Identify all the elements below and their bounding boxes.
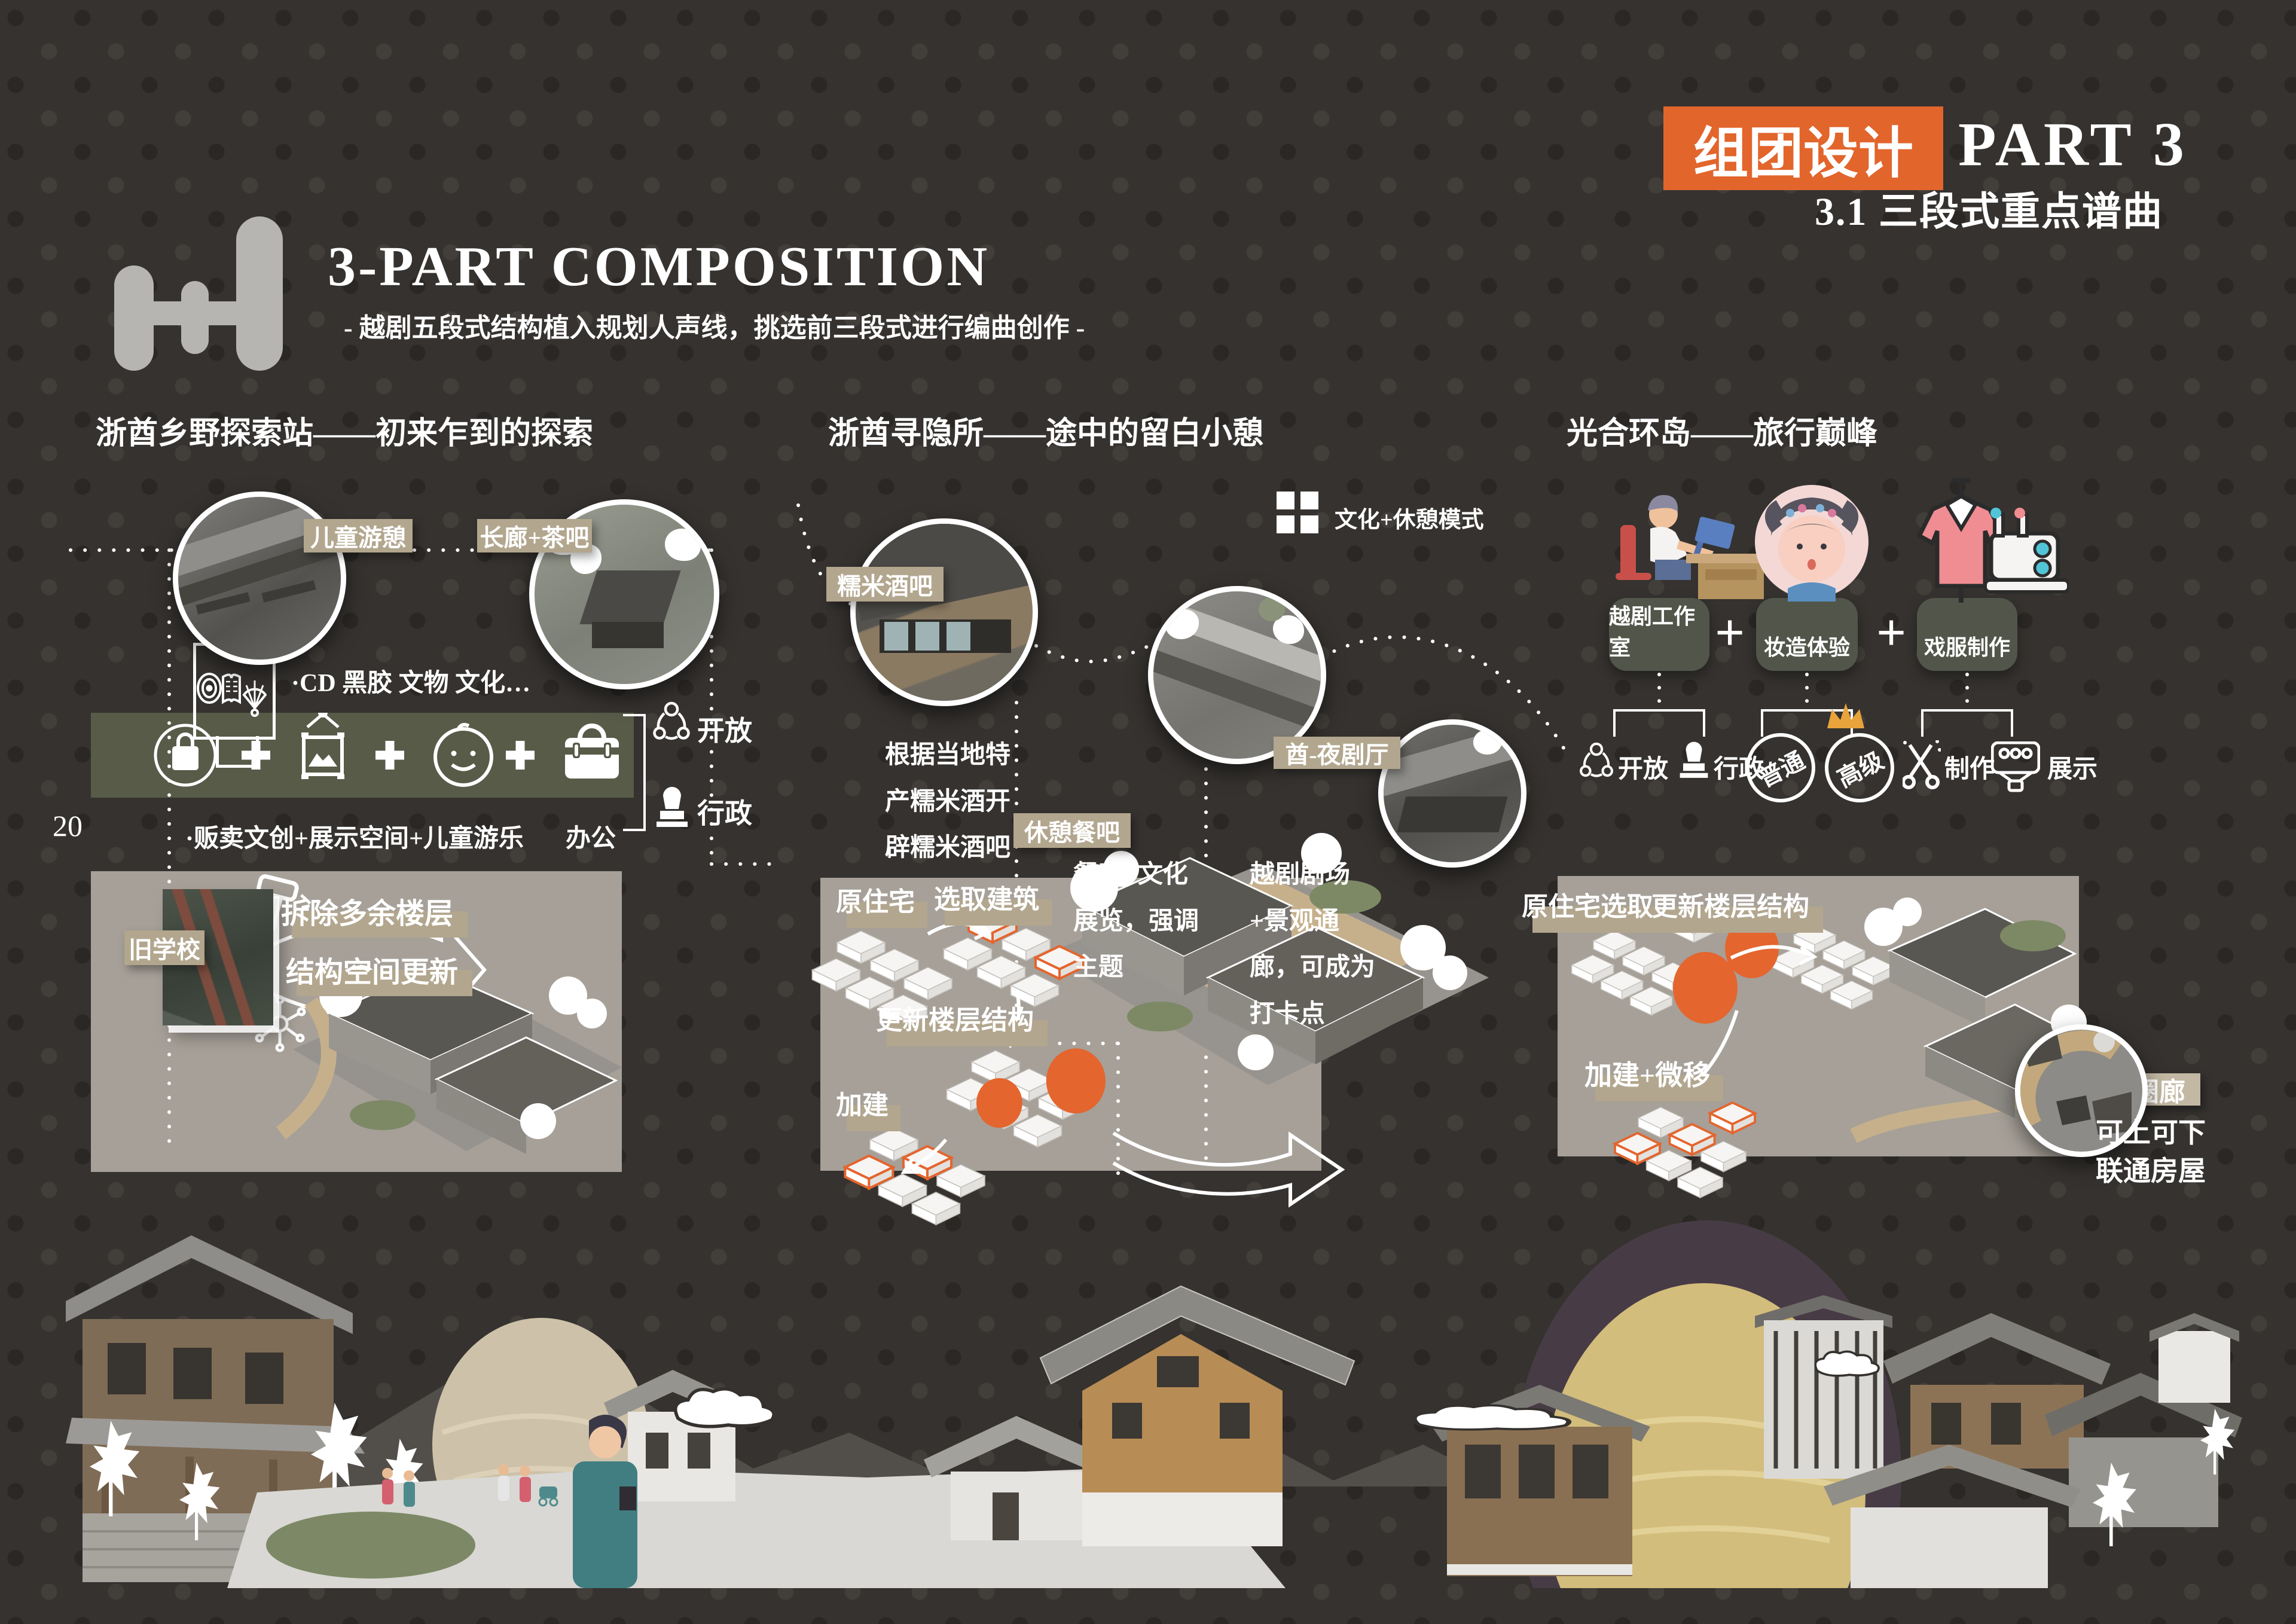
dlabel-origin: 原住宅	[836, 884, 915, 918]
label-rice-wine-bar: 糯米酒吧	[826, 567, 944, 602]
dlabel-demolish: 拆除多余楼层	[281, 893, 453, 932]
costume-sewing-illustration	[1901, 478, 2069, 607]
cluster-right-add	[1615, 1103, 1755, 1198]
crown-icon	[1826, 701, 1865, 731]
note-rest: 餐吧+文化展览，强调主题	[1073, 852, 1204, 991]
inset-rice-wine-bar	[850, 518, 1038, 706]
ring-note-1: 可上可下	[2096, 1111, 2206, 1150]
makeup-face-illustration	[1753, 482, 1870, 602]
panorama	[0, 1205, 2296, 1588]
tag-make: 制作	[1944, 749, 1995, 785]
ring-note-2: 联通房屋	[2096, 1149, 2206, 1189]
dlabel-select: 选取建筑	[934, 881, 1039, 916]
tag-brackets	[1614, 710, 2012, 737]
note-wine: 根据当地特产糯米酒开辟糯米酒吧	[885, 732, 1012, 872]
dlabel-right-select: 原住宅选取	[1522, 889, 1653, 923]
dlabel-right-update: 更新楼层结构	[1651, 889, 1809, 923]
inset-night-theater	[1378, 719, 1526, 868]
cloud	[676, 1389, 774, 1427]
label-corridor-teabar: 长廊+茶吧	[477, 519, 592, 552]
inset-children-play	[173, 492, 346, 665]
open-admin-bracket	[623, 715, 645, 830]
dotted-connectors-right	[1659, 674, 2010, 1089]
note-theater: 越剧剧场+景观通廊，可成为打卡点	[1250, 852, 1380, 1038]
label-children-play: 儿童游憩	[304, 519, 413, 552]
cluster-update	[947, 1048, 1106, 1147]
label-rest-bar: 休憩餐吧	[1013, 813, 1131, 848]
tag-display: 展示	[2047, 749, 2097, 785]
tag-display-projector-icon	[1991, 741, 2040, 795]
label-old-school: 旧学校	[124, 930, 204, 965]
dlabel-right-add: 加建+微移	[1584, 1057, 1710, 1093]
poster-board: 组团设计 PART 3 3.1 三段式重点谱曲 3-PART COMPOSITI…	[0, 0, 2296, 1624]
dlabel-renew: 结构空间更新	[286, 952, 458, 990]
update-highlight-1	[1673, 952, 1738, 1024]
dlabel-update: 更新楼层结构	[876, 1002, 1034, 1037]
tag-admin-icon	[1678, 739, 1710, 783]
label-night-theater: 酋-夜剧厅	[1274, 737, 1400, 769]
dlabel-add: 加建	[836, 1087, 889, 1122]
tag-open-icon	[1578, 741, 1614, 781]
tag-standard: 普通	[1746, 733, 1815, 802]
tag-premium: 高级	[1825, 733, 1894, 802]
tag-open: 开放	[1618, 749, 1668, 785]
tag-make-scissors-icon	[1903, 740, 1941, 795]
window-mode-icon	[1277, 492, 1318, 533]
mode-label: 文化+休憩模式	[1335, 501, 1484, 534]
